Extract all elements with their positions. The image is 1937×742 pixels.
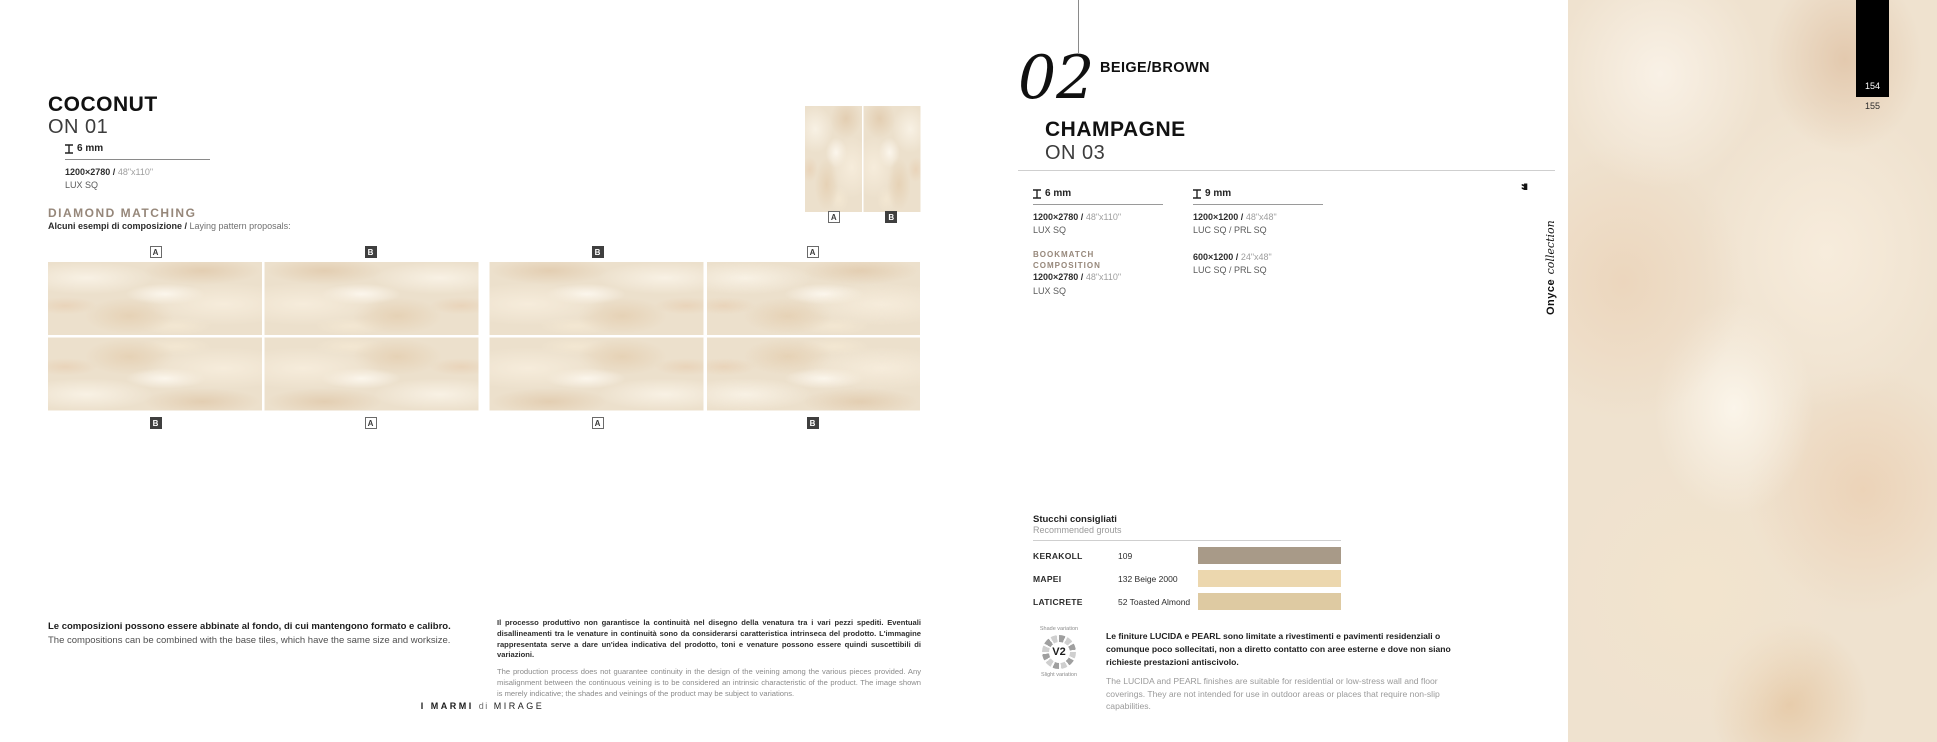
thickness-icon: [65, 144, 73, 154]
tile-image: [707, 338, 921, 411]
col1-thickness: 6 mm: [1045, 188, 1071, 199]
col1-item2: 1200×2780 / 48"x110" LUX SQ: [1033, 271, 1163, 297]
collection-name: Onyce: [1545, 279, 1557, 315]
title-rule: [1018, 170, 1555, 171]
diamond-matching-subtitle: Alcuni esempi di composizione / Laying p…: [48, 221, 291, 231]
format-inches: 48"x110": [118, 167, 153, 177]
grout-row: MAPEI 132 Beige 2000: [1033, 570, 1341, 587]
grout-color-swatch: [1198, 570, 1341, 587]
thickness-header: 6 mm: [65, 143, 210, 160]
composition-note-italian: Le composizioni possono essere abbinate …: [48, 620, 480, 634]
thickness-icon: [1033, 189, 1041, 199]
product-title-right: CHAMPAGNE: [1045, 118, 1186, 142]
page-number-current: 154: [1865, 81, 1880, 91]
tile-label: B: [365, 246, 377, 258]
section-title: BEIGE/BROWN: [1100, 60, 1210, 76]
col1-thickness-header: 6 mm: [1033, 188, 1163, 205]
tile-label-a: A: [828, 211, 840, 223]
catalog-spread: COCONUT ON 01 6 mm 1200×2780 / 48"x110" …: [0, 0, 1937, 742]
size: 1200×2780 /: [1033, 212, 1083, 222]
disclaimer-italian: Il processo produttivo non garantisce la…: [497, 618, 921, 661]
bookmatch-pair-image: [805, 106, 920, 212]
col2-thickness: 9 mm: [1205, 188, 1231, 199]
grouts-rule: [1033, 540, 1341, 541]
product-code-right: ON 03: [1045, 142, 1105, 165]
size: 1200×1200 /: [1193, 212, 1243, 222]
grout-row: LATICRETE 52 Toasted Almond: [1033, 593, 1341, 610]
diamond-matching-title: DIAMOND MATCHING: [48, 206, 196, 220]
grout-brand: MAPEI: [1033, 574, 1118, 584]
thickness-icon: [1193, 189, 1201, 199]
grout-row: KERAKOLL 109: [1033, 547, 1341, 564]
tile-label: A: [592, 417, 604, 429]
finish: LUX SQ: [1033, 286, 1066, 296]
tile-image: [490, 338, 704, 411]
grouts-title-italian: Stucchi consigliati: [1033, 514, 1341, 525]
tile-label: B: [592, 246, 604, 258]
page-number-next: 155: [1856, 101, 1889, 111]
comp2-top-labels: B A: [490, 246, 920, 258]
v2-badge-text: V2: [1052, 646, 1065, 658]
product-title-left: COCONUT: [48, 93, 158, 117]
tile-label: A: [807, 246, 819, 258]
tile-image: [48, 338, 262, 411]
footer-brand-bold: I MARMI: [421, 701, 474, 711]
subtitle-italian: Alcuni esempi di composizione /: [48, 221, 187, 231]
size: 1200×2780 /: [1033, 272, 1083, 282]
inches: 24"x48": [1241, 252, 1272, 262]
section-number: 02: [1018, 48, 1094, 108]
quote-icon: ❝: [1519, 183, 1537, 191]
grout-ref: 132 Beige 2000: [1118, 574, 1198, 584]
tile-image-mirrored: [864, 106, 921, 212]
bookmatch-label: BOOKMATCH COMPOSITION: [1033, 249, 1163, 271]
finish: LUC SQ / PRL SQ: [1193, 225, 1267, 235]
grout-ref: 52 Toasted Almond: [1118, 597, 1198, 607]
col1-item1: 1200×2780 / 48"x110" LUX SQ: [1033, 211, 1163, 237]
collection-suffix: collection: [1544, 220, 1557, 274]
format-size: 1200×2780 /: [65, 167, 115, 177]
product-code-left: ON 01: [48, 116, 108, 139]
footer-brand: I MARMI di MIRAGE: [0, 701, 965, 711]
tile-label: A: [365, 417, 377, 429]
comp2-bottom-labels: A B: [490, 417, 920, 429]
finish-note-italian: Le finiture LUCIDA e PEARL sono limitate…: [1106, 630, 1471, 669]
format-spec: 1200×2780 / 48"x110" LUX SQ: [65, 166, 210, 192]
composition2-image: [490, 262, 920, 410]
finish: LUX SQ: [1033, 225, 1066, 235]
tile-label: A: [150, 246, 162, 258]
composition1-image: [48, 262, 478, 410]
disclaimer-english: The production process does not guarante…: [497, 667, 921, 699]
inches: 48"x48": [1246, 212, 1277, 222]
champagne-slab-image: [1568, 0, 1937, 742]
finish-note-english: The LUCIDA and PEARL finishes are suitab…: [1106, 675, 1471, 714]
subtitle-english: Laying pattern proposals:: [187, 221, 291, 231]
composition-note-english: The compositions can be combined with th…: [48, 634, 480, 648]
inches: 48"x110": [1086, 272, 1121, 282]
slight-variation-label: Slight variation: [1030, 672, 1088, 678]
format-finish: LUX SQ: [65, 180, 98, 190]
finish: LUC SQ / PRL SQ: [1193, 265, 1267, 275]
tile-label: B: [150, 417, 162, 429]
col2-item2: 600×1200 / 24"x48" LUC SQ / PRL SQ: [1193, 251, 1323, 277]
tile-image: [490, 262, 704, 335]
grout-color-swatch: [1198, 547, 1341, 564]
tile-label-b: B: [885, 211, 897, 223]
pair-label-row: A B: [805, 211, 920, 223]
shade-variation-v2-icon: V2: [1042, 635, 1076, 669]
tile-image: [48, 262, 262, 335]
shade-variation-label: Shade variation: [1030, 626, 1088, 632]
thickness-label: 6 mm: [77, 143, 103, 154]
grouts-title-english: Recommended grouts: [1033, 525, 1341, 535]
size: 600×1200 /: [1193, 252, 1238, 262]
grout-color-swatch: [1198, 593, 1341, 610]
comp1-top-labels: A B: [48, 246, 478, 258]
grout-ref: 109: [1118, 551, 1198, 561]
tile-image: [707, 262, 921, 335]
footer-brand-company: MIRAGE: [494, 701, 545, 711]
tile-image: [805, 106, 862, 212]
grout-brand: KERAKOLL: [1033, 551, 1118, 561]
tile-image: [265, 338, 479, 411]
comp1-bottom-labels: B A: [48, 417, 478, 429]
col2-thickness-header: 9 mm: [1193, 188, 1323, 205]
page-number-tab: 154: [1856, 0, 1889, 97]
tile-image: [265, 262, 479, 335]
grout-brand: LATICRETE: [1033, 597, 1118, 607]
collection-vertical-label: Onyce collection: [1542, 185, 1560, 315]
tile-label: B: [807, 417, 819, 429]
inches: 48"x110": [1086, 212, 1121, 222]
col2-item1: 1200×1200 / 48"x48" LUC SQ / PRL SQ: [1193, 211, 1323, 237]
footer-brand-di: di: [479, 701, 489, 711]
